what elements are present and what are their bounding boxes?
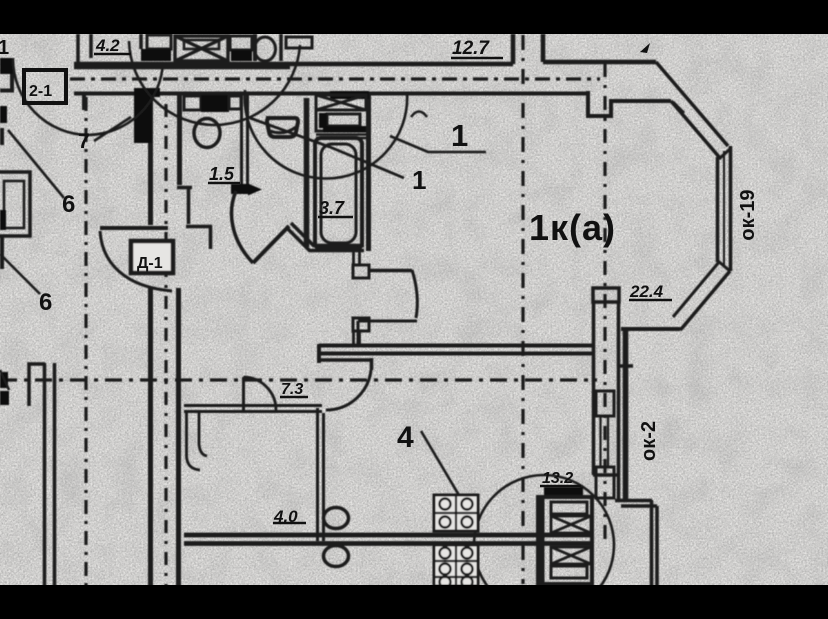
svg-text:2-1: 2-1 xyxy=(29,83,52,100)
svg-text:1к(а): 1к(а) xyxy=(529,207,616,248)
svg-text:ок-19: ок-19 xyxy=(737,189,759,240)
svg-text:13.2: 13.2 xyxy=(542,470,573,487)
svg-text:4.2: 4.2 xyxy=(95,36,120,55)
svg-text:1.5: 1.5 xyxy=(209,164,235,184)
svg-text:ок-2: ок-2 xyxy=(638,421,660,461)
svg-text:1: 1 xyxy=(412,165,426,195)
svg-text:4: 4 xyxy=(397,421,414,454)
svg-text:12.7: 12.7 xyxy=(452,38,490,59)
svg-text:6: 6 xyxy=(62,191,75,218)
svg-text:3.7: 3.7 xyxy=(319,198,345,218)
svg-text:7: 7 xyxy=(78,130,90,153)
svg-text:7.3: 7.3 xyxy=(281,381,303,398)
svg-text:1: 1 xyxy=(451,118,468,153)
svg-text:22.4: 22.4 xyxy=(629,282,664,301)
svg-text:Д-1: Д-1 xyxy=(137,255,163,272)
svg-text:1: 1 xyxy=(0,37,9,59)
svg-text:6: 6 xyxy=(39,289,52,316)
